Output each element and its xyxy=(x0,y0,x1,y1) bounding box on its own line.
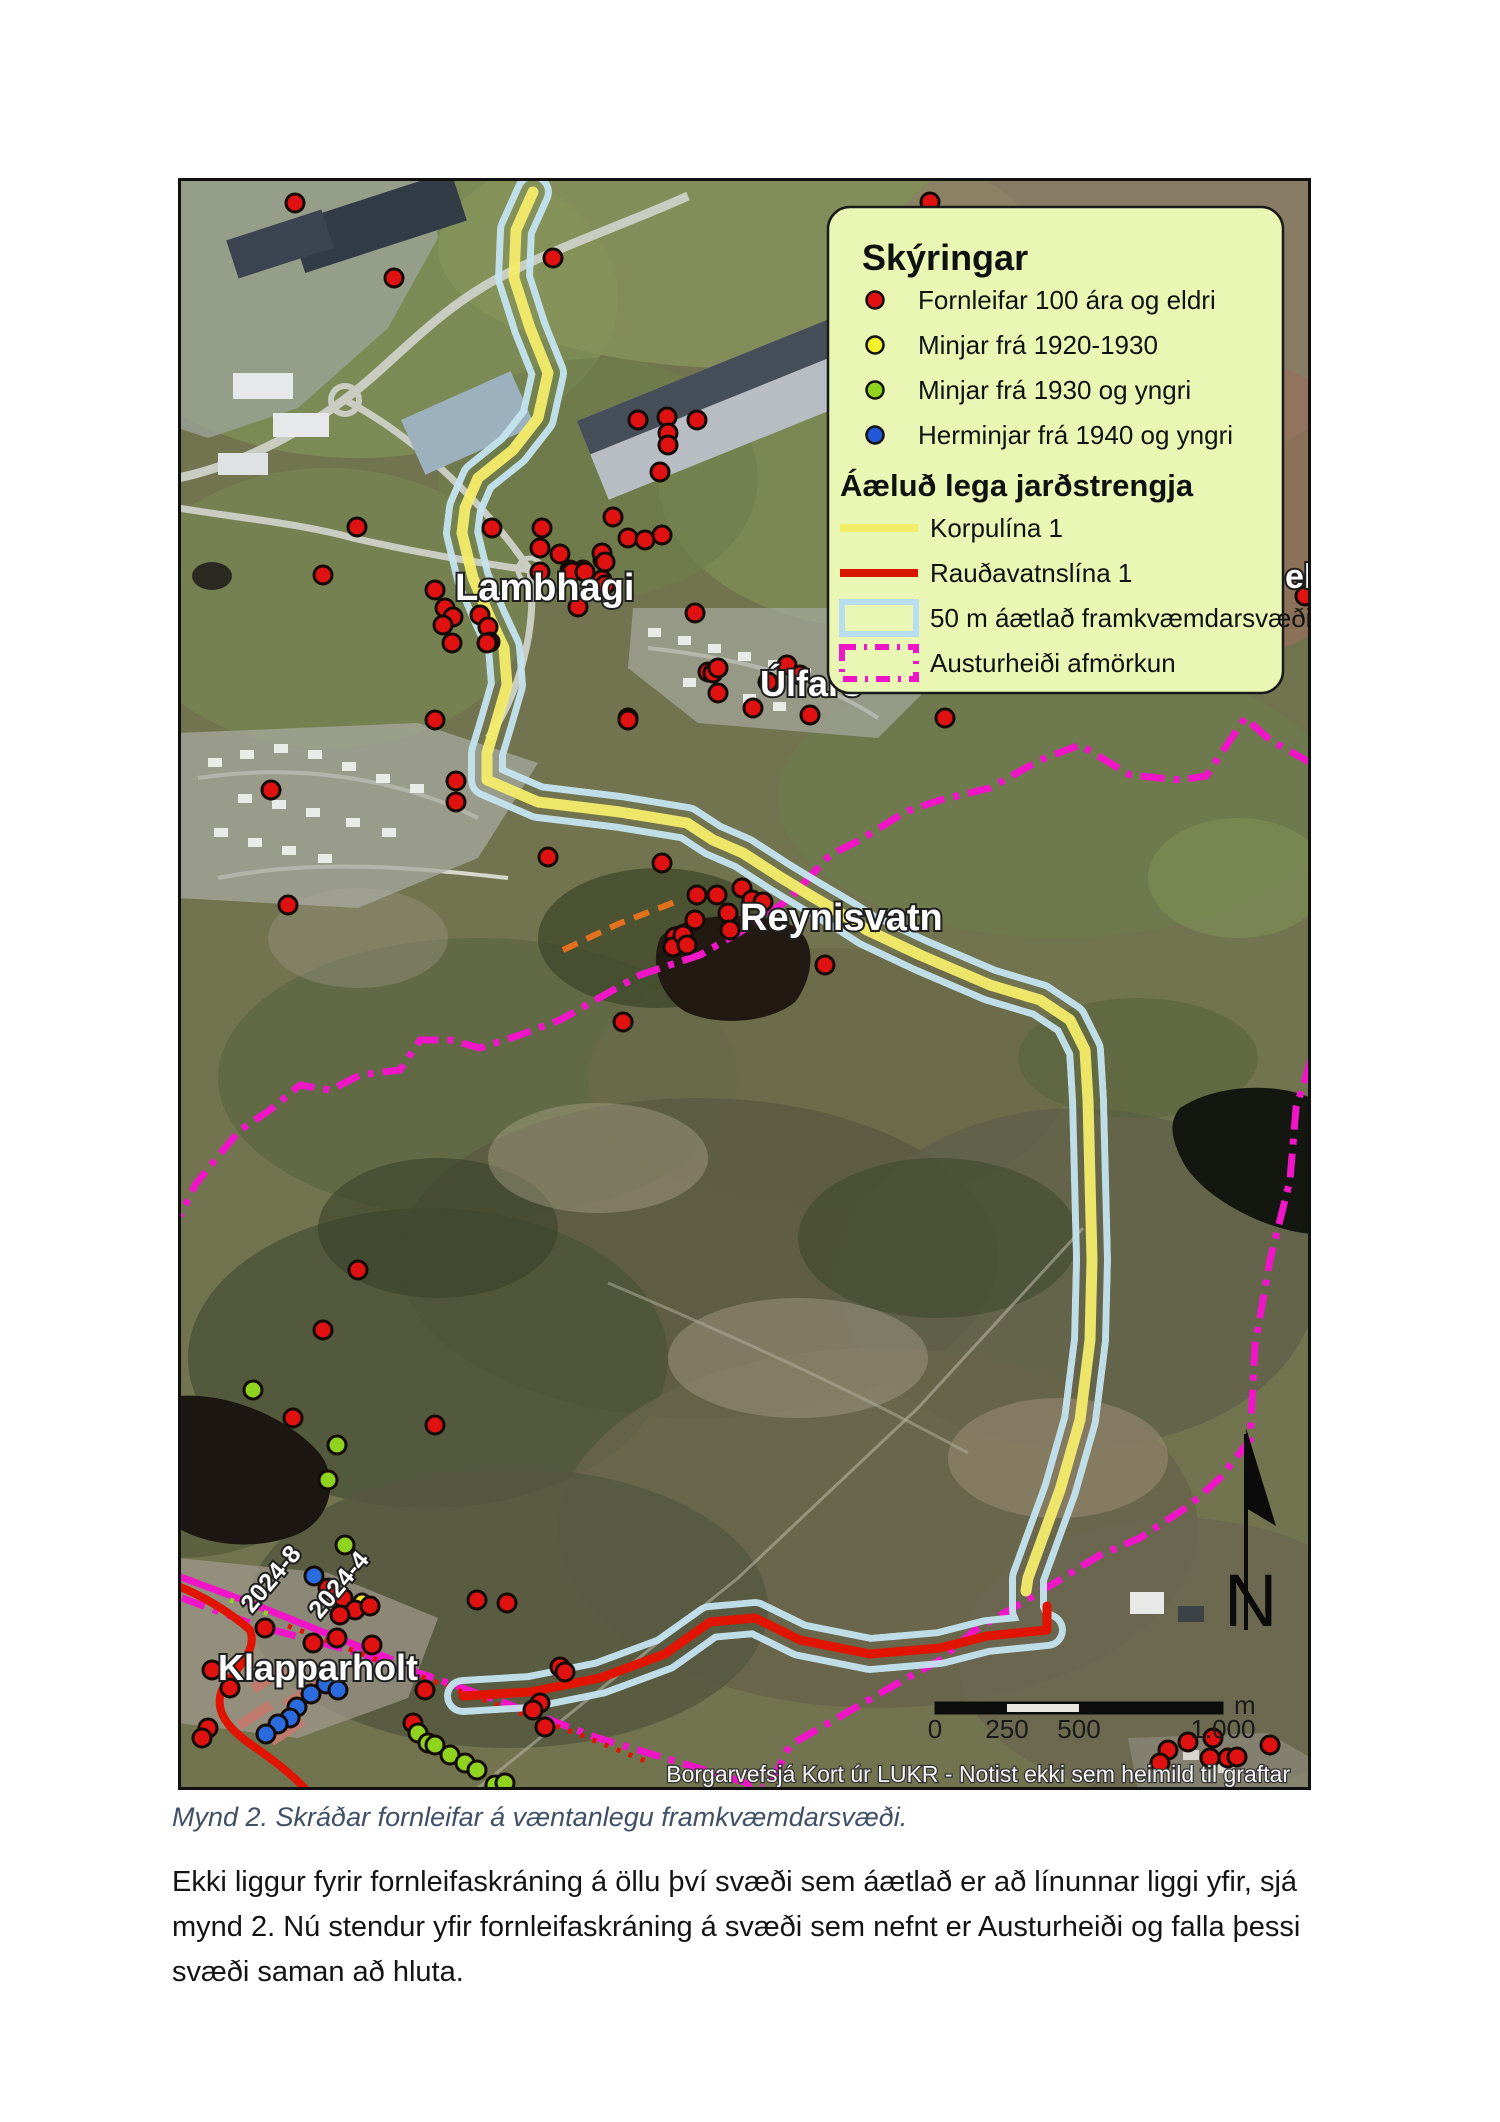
marker-fornleifar-100-ara xyxy=(659,436,677,454)
legend-point-swatch xyxy=(867,337,884,354)
place-label: Lambhagi xyxy=(455,567,634,609)
attribution-text: Borgarvefsjá Kort úr LUKR - Notist ekki … xyxy=(666,1761,1290,1787)
marker-fornleifar-100-ara xyxy=(936,709,954,727)
marker-minjar-1930-yngri xyxy=(328,1436,346,1454)
marker-fornleifar-100-ara xyxy=(447,793,465,811)
marker-fornleifar-100-ara xyxy=(279,896,297,914)
legend-point-swatch xyxy=(867,427,884,444)
marker-fornleifar-100-ara xyxy=(385,269,403,287)
marker-fornleifar-100-ara xyxy=(801,706,819,724)
marker-fornleifar-100-ara xyxy=(426,581,444,599)
svg-text:N: N xyxy=(1224,1559,1277,1642)
legend-item-label: Rauðavatnslína 1 xyxy=(930,558,1132,588)
marker-fornleifar-100-ara xyxy=(653,526,671,544)
scalebar-tick: 0 xyxy=(928,1714,942,1744)
marker-fornleifar-100-ara xyxy=(709,684,727,702)
marker-herminjar-1940-yngri xyxy=(257,1725,275,1743)
legend-item-label: Korpulína 1 xyxy=(930,513,1063,543)
marker-fornleifar-100-ara xyxy=(709,659,727,677)
marker-fornleifar-100-ara xyxy=(447,772,465,790)
legend-item-label: Minjar frá 1930 og yngri xyxy=(918,375,1191,405)
marker-fornleifar-100-ara xyxy=(262,781,280,799)
legend-item-label: Minjar frá 1920-1930 xyxy=(918,330,1158,360)
marker-fornleifar-100-ara xyxy=(284,1409,302,1427)
marker-fornleifar-100-ara xyxy=(614,1013,632,1031)
marker-fornleifar-100-ara xyxy=(1261,1736,1279,1754)
marker-fornleifar-100-ara xyxy=(721,921,739,939)
legend-item-label: Austurheiði afmörkun xyxy=(930,648,1176,678)
marker-fornleifar-100-ara xyxy=(539,848,557,866)
scalebar-unit: m xyxy=(1234,1690,1256,1720)
marker-fornleifar-100-ara xyxy=(498,1594,516,1612)
marker-fornleifar-100-ara xyxy=(678,936,696,954)
marker-fornleifar-100-ara xyxy=(719,904,737,922)
marker-fornleifar-100-ara xyxy=(536,1718,554,1736)
marker-minjar-1930-yngri xyxy=(319,1471,337,1489)
marker-fornleifar-100-ara xyxy=(651,463,669,481)
scalebar-tick: 250 xyxy=(985,1714,1028,1744)
legend-subtitle: Áæluð lega jarðstrengja xyxy=(840,468,1194,503)
marker-fornleifar-100-ara xyxy=(816,956,834,974)
marker-fornleifar-100-ara xyxy=(193,1729,211,1747)
marker-fornleifar-100-ara xyxy=(426,711,444,729)
marker-fornleifar-100-ara xyxy=(434,616,452,634)
legend-point-swatch xyxy=(867,382,884,399)
marker-minjar-1930-yngri xyxy=(468,1761,486,1779)
marker-fornleifar-100-ara xyxy=(619,529,637,547)
marker-fornleifar-100-ara xyxy=(314,566,332,584)
place-label: Reynisvatn xyxy=(740,897,943,939)
marker-fornleifar-100-ara xyxy=(361,1597,379,1615)
marker-fornleifar-100-ara xyxy=(629,411,647,429)
marker-fornleifar-100-ara xyxy=(619,711,637,729)
legend-point-swatch xyxy=(867,292,884,309)
marker-fornleifar-100-ara xyxy=(468,1591,486,1609)
document-page: LambhagiÚlfarsReynisvatnellKlapparholt20… xyxy=(0,0,1500,2122)
marker-fornleifar-100-ara xyxy=(604,508,622,526)
marker-fornleifar-100-ara xyxy=(443,634,461,652)
marker-fornleifar-100-ara xyxy=(688,886,706,904)
small-pond xyxy=(192,562,232,590)
marker-minjar-1930-yngri xyxy=(244,1381,262,1399)
legend-title: Skýringar xyxy=(862,237,1028,278)
marker-fornleifar-100-ara xyxy=(544,249,562,267)
map-figure: LambhagiÚlfarsReynisvatnellKlapparholt20… xyxy=(178,178,1311,1790)
marker-fornleifar-100-ara xyxy=(531,539,549,557)
marker-fornleifar-100-ara xyxy=(478,634,496,652)
legend-item-label: Herminjar frá 1940 og yngri xyxy=(918,420,1233,450)
marker-fornleifar-100-ara xyxy=(349,1261,367,1279)
marker-fornleifar-100-ara xyxy=(416,1681,434,1699)
marker-fornleifar-100-ara xyxy=(686,604,704,622)
marker-fornleifar-100-ara xyxy=(256,1619,274,1637)
marker-fornleifar-100-ara xyxy=(688,411,706,429)
marker-fornleifar-100-ara xyxy=(483,519,501,537)
legend-item-label: Fornleifar 100 ára og eldri xyxy=(918,285,1216,315)
scalebar-tick: 500 xyxy=(1057,1714,1100,1744)
marker-fornleifar-100-ara xyxy=(653,854,671,872)
place-label: Klapparholt xyxy=(218,1647,418,1688)
marker-fornleifar-100-ara xyxy=(286,194,304,212)
body-paragraph: Ekki liggur fyrir fornleifaskráning á öl… xyxy=(172,1860,1347,1995)
marker-fornleifar-100-ara xyxy=(328,1629,346,1647)
marker-fornleifar-100-ara xyxy=(314,1321,332,1339)
place-label: ell xyxy=(1285,558,1311,596)
marker-fornleifar-100-ara xyxy=(533,519,551,537)
marker-fornleifar-100-ara xyxy=(426,1416,444,1434)
map-legend: SkýringarFornleifar 100 ára og eldriMinj… xyxy=(828,207,1311,693)
marker-fornleifar-100-ara xyxy=(556,1663,574,1681)
legend-item-label: 50 m áætlað framkvæmdarsvæði xyxy=(930,603,1311,633)
figure-caption: Mynd 2. Skráðar fornleifar á væntanlegu … xyxy=(172,1802,1352,1833)
marker-fornleifar-100-ara xyxy=(348,518,366,536)
marker-fornleifar-100-ara xyxy=(708,886,726,904)
marker-fornleifar-100-ara xyxy=(636,531,654,549)
marker-fornleifar-100-ara xyxy=(524,1701,542,1719)
marker-herminjar-1940-yngri xyxy=(305,1567,323,1585)
